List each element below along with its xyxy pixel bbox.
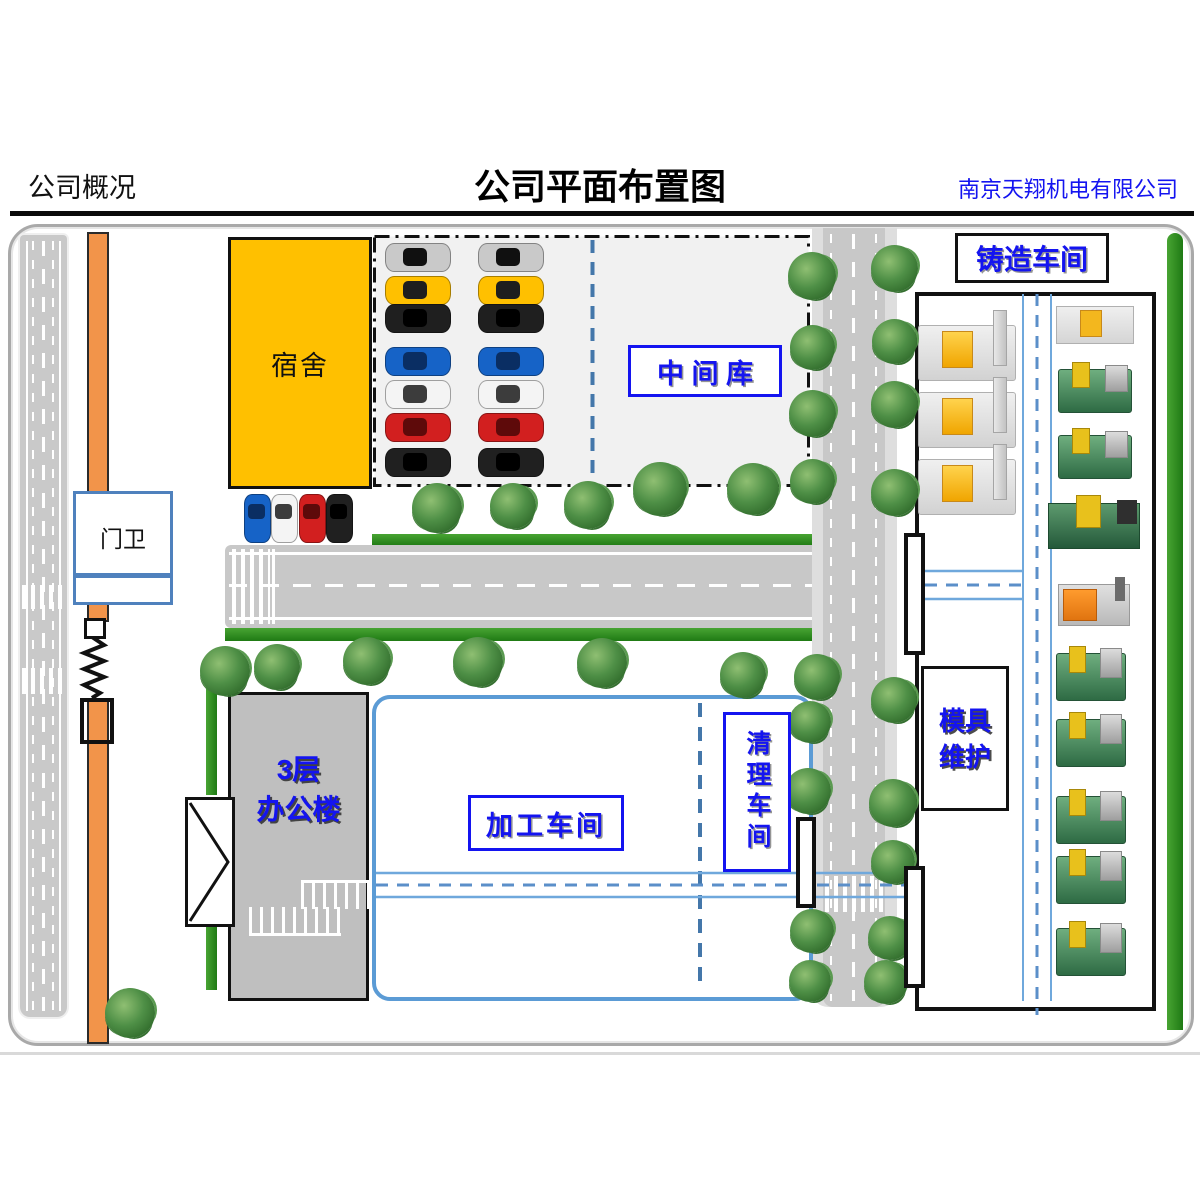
header-divider — [10, 211, 1194, 216]
workshop-door — [796, 817, 816, 908]
grass-strip-office-bottom — [206, 922, 217, 990]
gatehouse-divider — [75, 573, 171, 578]
lane-marking — [229, 584, 830, 587]
grass-strip-road-bottom — [225, 628, 825, 641]
factory-road-vertical-shoulder — [812, 228, 897, 1007]
workshop-door — [904, 533, 925, 655]
grass-strip-office-top — [206, 668, 217, 795]
lane-marking — [229, 617, 830, 620]
office-label: 3层 办公楼 — [231, 750, 366, 830]
dormitory-building: 宿舍 — [228, 237, 372, 489]
mold-maintenance-line1: 模具 — [939, 703, 991, 739]
crosswalk — [22, 668, 65, 694]
lane-marking — [26, 241, 28, 1011]
public-road-left — [20, 235, 67, 1017]
lane-marking — [59, 241, 61, 1011]
processing-workshop-label: 加工车间 — [468, 795, 624, 851]
gatehouse: 门卫 — [73, 491, 173, 605]
gatehouse-label: 门卫 — [76, 520, 170, 554]
cleaning-workshop-label: 清理车间 — [723, 712, 791, 872]
intermediate-warehouse-label: 中 间 库 — [628, 345, 782, 397]
office-entrance-canopy — [185, 797, 235, 927]
lane-marking — [52, 241, 54, 1011]
slide-bottom-rule — [0, 1052, 1200, 1055]
grass-strip-right — [1167, 233, 1183, 1030]
gate-post — [80, 698, 114, 744]
workshop-door — [904, 866, 925, 988]
factory-road-vertical — [823, 228, 885, 1007]
company-name: 南京天翔机电有限公司 — [958, 172, 1178, 204]
mold-maintenance-label: 模具 维护 — [921, 666, 1009, 811]
dormitory-label: 宿舍 — [271, 344, 329, 383]
crosswalk — [825, 876, 883, 912]
stop-line — [272, 549, 275, 624]
lane-marking — [42, 241, 45, 1011]
staircase-icon — [249, 907, 341, 936]
crosswalk — [232, 549, 270, 624]
gate-post — [84, 618, 106, 639]
factory-road-horizontal — [225, 545, 830, 628]
mold-maintenance-line2: 维护 — [939, 739, 991, 775]
site-plan-slide: 公司概况 公司平面布置图 南京天翔机电有限公司 — [0, 0, 1200, 1200]
lane-marking — [32, 241, 34, 1011]
canopy-chevron-icon — [188, 800, 232, 924]
office-building: 3层 办公楼 — [228, 692, 369, 1001]
lane-marking — [229, 552, 830, 555]
crosswalk — [22, 585, 65, 609]
boundary-wall-bottom — [87, 700, 109, 1044]
casting-workshop-label: 铸造车间 — [955, 233, 1109, 283]
casting-workshop-building — [915, 292, 1156, 1011]
